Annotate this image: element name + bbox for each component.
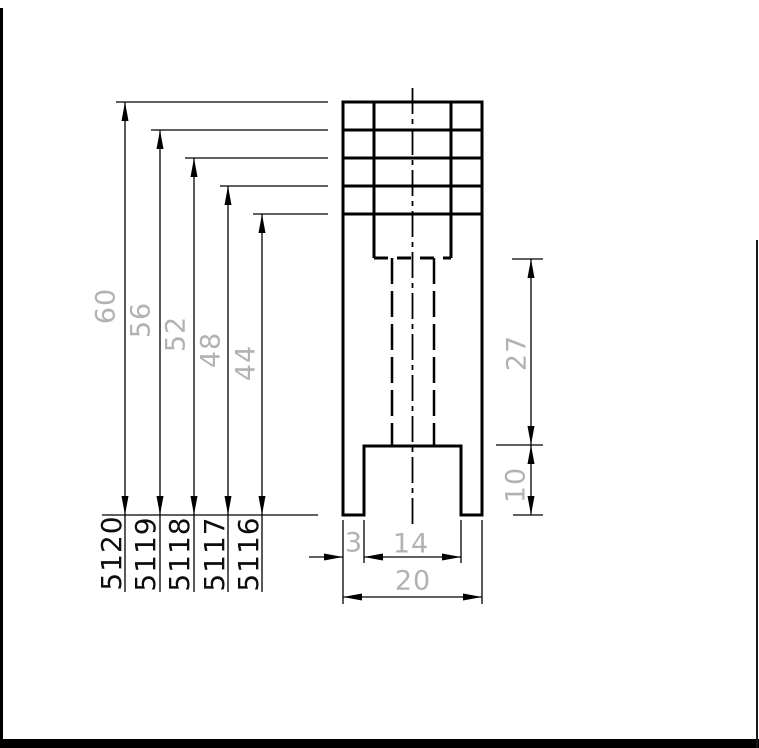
arrow-right-14 [442, 554, 461, 561]
item-number-5119: 5119 [132, 516, 160, 591]
technical-drawing-canvas [0, 0, 759, 748]
arrow-left-14 [364, 554, 383, 561]
dim-label-27: 27 [504, 335, 531, 371]
arrow-down-52 [191, 496, 198, 515]
dim-label-56: 56 [128, 302, 155, 338]
arrow-down-56 [157, 496, 164, 515]
dim-label-20: 20 [395, 568, 431, 595]
item-number-5120: 5120 [98, 515, 126, 590]
dim-label-48: 48 [198, 332, 225, 368]
arrow-up-60 [122, 102, 129, 121]
item-number-5116: 5116 [235, 516, 263, 591]
arrow-down-44 [259, 496, 266, 515]
arrow-right-20 [463, 594, 482, 601]
item-number-5117: 5117 [201, 516, 229, 591]
dim-label-3: 3 [345, 530, 363, 557]
page-edge-right [756, 240, 758, 748]
dim-label-44: 44 [233, 345, 260, 381]
arrow-up-52 [191, 158, 198, 177]
dim-label-52: 52 [163, 316, 190, 352]
dim-label-10: 10 [503, 467, 530, 503]
page-edge-bottom [0, 739, 759, 748]
arrow-up-56 [157, 130, 164, 149]
arrow-down-48 [225, 496, 232, 515]
drawing-page: 60 56 52 48 44 5120 5119 5118 5117 5116 … [0, 0, 759, 748]
arrow-right-3 [324, 554, 343, 561]
arrow-up-48 [225, 186, 232, 205]
page-edge-left [0, 8, 3, 748]
arrow-left-20 [343, 594, 362, 601]
dim-label-14: 14 [393, 531, 429, 558]
arrow-up-10 [528, 445, 535, 464]
arrow-down-27 [528, 426, 535, 445]
item-number-5118: 5118 [166, 516, 194, 591]
arrow-up-27 [528, 259, 535, 278]
arrow-up-44 [259, 214, 266, 233]
arrow-down-60 [122, 496, 129, 515]
dim-label-60: 60 [93, 288, 120, 324]
